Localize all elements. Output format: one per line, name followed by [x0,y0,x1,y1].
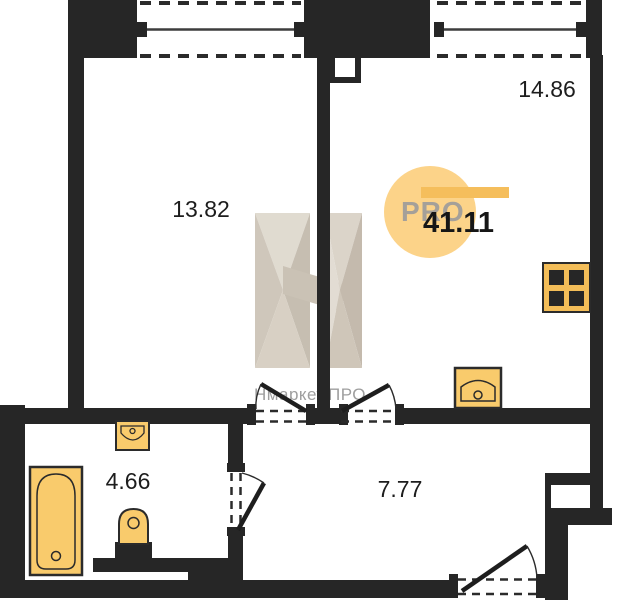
total-area-label: 41.11 [423,207,494,239]
door-bathroom [232,473,265,530]
room-left-area-label: 13.82 [172,196,230,222]
watermark-h-logo [255,213,362,368]
door-entrance [458,546,537,594]
window-left [137,3,304,56]
wash-basin-icon [112,414,153,450]
floor-plan: Нмаркет.ПРО [0,0,618,600]
bathroom-area-label: 4.66 [106,468,151,494]
stove-icon [543,263,590,312]
hallway-area-label: 7.77 [378,476,423,502]
kitchen-sink-icon [455,368,501,408]
window-right [434,3,586,56]
toilet-icon [115,509,152,559]
room-right-area-label: 14.86 [518,76,576,102]
bathtub-icon [30,467,82,575]
floor-plan-canvas: Нмаркет.ПРО [0,0,618,600]
